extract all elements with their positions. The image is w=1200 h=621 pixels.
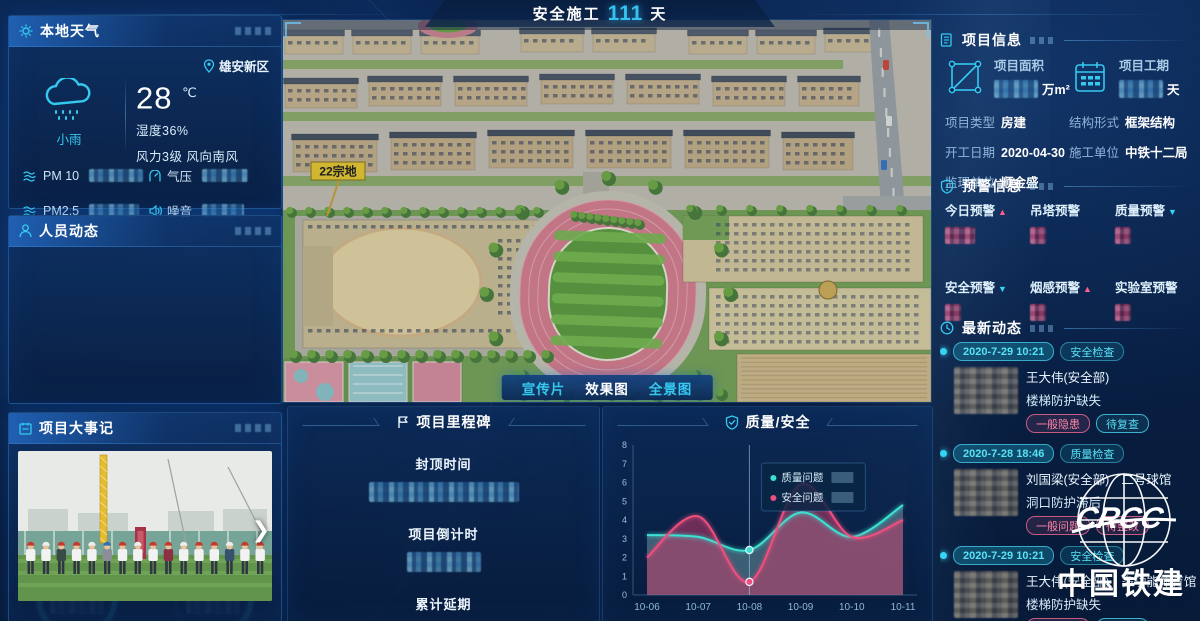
update-entry-body: 王大伟(安全部)楼梯防护缺失一般隐患待复查: [954, 367, 1198, 433]
view-mode-switcher: 宣传片效果图全景图: [502, 375, 713, 400]
smart-site-dashboard: 安全施工 111 天 本地天气 雄安新区: [0, 0, 1200, 621]
svg-text:0: 0: [621, 590, 626, 600]
aerial-render-viewer[interactable]: 22宗地 宣传片效果图全景图: [283, 20, 931, 402]
masked-value: [1119, 80, 1163, 98]
milestone-panel-title: 项目里程碑: [417, 412, 492, 432]
safe-days-label: 安全施工: [533, 3, 601, 24]
update-photo: [954, 469, 1018, 516]
warnings-grid: 今日预警▲吊塔预警质量预警▼安全预警▼烟感预警▲实验室预警: [945, 200, 1200, 326]
update-location: 多功能体育馆: [1121, 575, 1196, 589]
update-entry[interactable]: 2020-7-29 10:21安全检查王大伟(安全部)楼梯防护缺失一般隐患待复查: [940, 342, 1198, 433]
aerial-render-image: 22宗地: [283, 20, 931, 402]
update-person: 王大伟(安全部): [1026, 371, 1109, 385]
update-person: 刘国梁(安全部): [1026, 473, 1109, 487]
update-tags: 一般隐患待复查: [1026, 414, 1149, 433]
weather-panel-header: 本地天气: [9, 16, 281, 47]
weather-metrics: PM 10 气压 PM2.5 噪音: [23, 166, 273, 220]
svg-text:质量问题: 质量问题: [781, 471, 823, 484]
warnings-header: 预警信息: [940, 176, 1192, 196]
svg-text:安全问题: 安全问题: [781, 491, 823, 504]
update-issue: 楼梯防护缺失: [1026, 594, 1196, 613]
svg-text:10-07: 10-07: [685, 602, 711, 613]
updates-title: 最新动态: [962, 318, 1022, 338]
svg-text:6: 6: [621, 478, 626, 488]
svg-text:1: 1: [621, 571, 626, 581]
personnel-panel: 人员动态 花名册现场人数出勤人数刷卡率: [8, 215, 282, 404]
header-decor-line: [1064, 186, 1192, 187]
weather-panel: 本地天气 雄安新区 小雨: [8, 15, 282, 209]
masked-value: [994, 80, 1038, 98]
milestone-panel: 项目里程碑 封顶时间 项目倒计时 累计延期: [287, 406, 600, 621]
updates-list: 2020-7-29 10:21安全检查王大伟(安全部)楼梯防护缺失一般隐患待复查…: [940, 342, 1198, 621]
update-person-row: 刘国梁(安全部)二号球馆: [1026, 469, 1171, 488]
warning-label: 质量预警▼: [1115, 200, 1200, 219]
alert-shield-icon: [940, 179, 954, 194]
warning-stat: 今日预警▲: [945, 200, 1030, 249]
update-tag: 待复查: [1096, 414, 1149, 433]
svg-text:10-06: 10-06: [634, 602, 660, 613]
trend-up-icon: ▲: [1083, 284, 1092, 294]
milestone-delay: 累计延期: [288, 594, 599, 621]
header-decor-line: [1064, 40, 1192, 41]
personnel-panel-header: 人员动态: [9, 216, 281, 247]
project-duration-stat: 项目工期 天: [1070, 55, 1195, 98]
safe-days-unit: 天: [650, 3, 667, 24]
metric-pm10: PM 10: [23, 166, 148, 185]
gear-icon: [19, 24, 33, 38]
update-date: 2020-7-29 10:21: [953, 546, 1054, 565]
svg-text:10-08: 10-08: [736, 602, 762, 613]
update-date: 2020-7-29 10:21: [953, 342, 1054, 361]
update-date: 2020-7-28 18:46: [953, 444, 1054, 463]
flag-icon: [396, 415, 410, 429]
quality-safety-title: 质量/安全: [746, 412, 811, 432]
field-structure: 结构形式框架结构: [1069, 112, 1200, 131]
humidity: 湿度36%: [136, 120, 238, 139]
update-category: 安全检查: [1060, 546, 1124, 565]
masked-value: [407, 552, 481, 572]
events-panel-header: 项目大事记: [9, 413, 281, 444]
svg-text:10-09: 10-09: [787, 602, 813, 613]
divider: [125, 78, 126, 152]
masked-value: [1030, 227, 1046, 244]
update-tag: 一般问题: [1026, 516, 1090, 535]
updates-header: 最新动态: [940, 318, 1192, 338]
carousel-next-icon[interactable]: ❯: [252, 517, 270, 543]
project-info-header: 项目信息: [940, 30, 1192, 50]
shield-check-icon: [725, 415, 739, 430]
warning-stat: 吊塔预警: [1030, 200, 1115, 249]
view-button-2[interactable]: 效果图: [585, 378, 629, 398]
update-tags: 一般问题待整改: [1026, 516, 1171, 535]
svg-text:3: 3: [621, 534, 626, 544]
events-panel-title: 项目大事记: [39, 418, 114, 438]
weather-condition: 小雨: [23, 129, 115, 148]
timeline-dot: [940, 552, 947, 559]
field-contractor: 施工单位中铁十二局: [1069, 142, 1200, 161]
update-entry-info: 王大伟(安全部)多功能体育馆楼梯防护缺失一般隐患待复查: [1026, 571, 1196, 621]
update-issue: 洞口防护滞后: [1026, 492, 1171, 511]
header-decor: [1030, 183, 1056, 190]
haze-icon: [23, 170, 38, 182]
location-label: 雄安新区: [219, 56, 269, 75]
update-category: 质量检查: [1060, 444, 1124, 463]
warning-stat: 质量预警▼: [1115, 200, 1200, 249]
update-entry-info: 刘国梁(安全部)二号球馆洞口防护滞后一般问题待整改: [1026, 469, 1171, 535]
svg-text:10-10: 10-10: [839, 602, 865, 613]
quality-safety-chart[interactable]: 01234567810-0610-0710-0810-0910-1010-11质…: [607, 437, 929, 619]
events-panel: 项目大事记 ❯: [8, 412, 282, 621]
warning-label: 今日预警▲: [945, 200, 1030, 219]
timeline-dot: [940, 450, 947, 457]
warning-label: 吊塔预警: [1030, 200, 1115, 219]
update-photo: [954, 571, 1018, 618]
clock-icon: [940, 321, 954, 335]
milestone-topping-time: 封顶时间: [288, 454, 599, 507]
svg-text:4: 4: [621, 515, 626, 525]
view-button-1[interactable]: 宣传片: [522, 378, 566, 398]
group-photo-image: [18, 451, 272, 601]
quality-safety-title-row: 质量/安全: [603, 407, 932, 437]
update-entry-head: 2020-7-29 10:21安全检查: [940, 546, 1198, 565]
svg-text:2: 2: [621, 553, 626, 563]
viewer-corner-decor: [913, 22, 929, 38]
update-entry-info: 王大伟(安全部)楼梯防护缺失一般隐患待复查: [1026, 367, 1149, 433]
quality-safety-panel: 质量/安全 01234567810-0610-0710-0810-0910-10…: [602, 406, 933, 621]
update-tag: 一般隐患: [1026, 414, 1090, 433]
calendar-icon: [1070, 57, 1110, 97]
project-area-stat: 项目面积 万m²: [945, 55, 1070, 98]
update-entry-head: 2020-7-29 10:21安全检查: [940, 342, 1198, 361]
trend-up-icon: ▲: [998, 207, 1007, 217]
viewer-corner-decor: [285, 22, 301, 38]
pressure-icon: [148, 170, 162, 182]
update-entry-body: 王大伟(安全部)多功能体育馆楼梯防护缺失一般隐患待复查: [954, 571, 1198, 621]
masked-value: [945, 227, 975, 244]
area-icon: [945, 57, 985, 97]
metric-pressure: 气压: [148, 166, 273, 185]
update-person-row: 王大伟(安全部): [1026, 367, 1149, 386]
temperature: 28 ℃: [136, 78, 238, 113]
svg-text:10-11: 10-11: [890, 602, 915, 613]
update-entry[interactable]: 2020-7-28 18:46质量检查刘国梁(安全部)二号球馆洞口防护滞后一般问…: [940, 444, 1198, 535]
update-entry-head: 2020-7-28 18:46质量检查: [940, 444, 1198, 463]
header-decor: [1030, 325, 1056, 332]
safe-days-value: 111: [608, 2, 644, 26]
masked-value: [1115, 227, 1131, 244]
rain-cloud-icon: [40, 78, 98, 122]
personnel-panel-title: 人员动态: [39, 221, 99, 241]
field-project-type: 项目类型房建: [945, 112, 1063, 131]
masked-value: [369, 482, 519, 502]
update-location: 二号球馆: [1121, 473, 1171, 487]
wind: 风力3级 风向南风: [136, 146, 238, 165]
update-entry-body: 刘国梁(安全部)二号球馆洞口防护滞后一般问题待整改: [954, 469, 1198, 535]
svg-text:7: 7: [621, 459, 626, 469]
update-tag: 待整改: [1096, 516, 1149, 535]
weather-panel-title: 本地天气: [40, 21, 100, 41]
view-button-3[interactable]: 全景图: [649, 378, 693, 398]
update-person: 王大伟(安全部): [1026, 575, 1109, 589]
project-info-stats: 项目面积 万m² 项目工期 天: [945, 55, 1195, 98]
trend-down-icon: ▼: [1168, 207, 1177, 217]
milestone-countdown: 项目倒计时: [288, 524, 599, 577]
event-photo: ❯: [18, 451, 272, 601]
document-icon: [940, 33, 954, 47]
project-info-title: 项目信息: [962, 30, 1022, 50]
warnings-title: 预警信息: [962, 176, 1022, 196]
safe-days-banner: 安全施工 111 天: [425, 0, 775, 27]
field-start-date: 开工日期2020-04-30: [945, 142, 1063, 161]
timeline-dot: [940, 348, 947, 355]
chart-tooltip: 质量问题安全问题: [761, 463, 865, 511]
header-decor: [1030, 37, 1056, 44]
svg-text:8: 8: [621, 440, 626, 450]
warning-label: 安全预警▼: [945, 277, 1030, 296]
warning-label: 实验室预警: [1115, 277, 1200, 296]
memo-icon: [19, 422, 32, 435]
update-person-row: 王大伟(安全部)多功能体育馆: [1026, 571, 1196, 590]
location-chip: 雄安新区: [203, 56, 269, 75]
update-photo: [954, 367, 1018, 414]
update-entry[interactable]: 2020-7-29 10:21安全检查王大伟(安全部)多功能体育馆楼梯防护缺失一…: [940, 546, 1198, 621]
weather-current: 小雨 28 ℃ 湿度36% 风力3级 风向南风: [23, 78, 271, 165]
trend-down-icon: ▼: [998, 284, 1007, 294]
update-issue: 楼梯防护缺失: [1026, 390, 1149, 409]
header-decor-line: [1064, 328, 1192, 329]
warning-label: 烟感预警▲: [1030, 277, 1115, 296]
top-decor-line: [790, 14, 1170, 15]
person-icon: [19, 224, 32, 238]
update-category: 安全检查: [1060, 342, 1124, 361]
milestone-panel-title-row: 项目里程碑: [288, 407, 599, 437]
svg-text:5: 5: [621, 496, 626, 506]
location-pin-icon: [203, 59, 215, 73]
